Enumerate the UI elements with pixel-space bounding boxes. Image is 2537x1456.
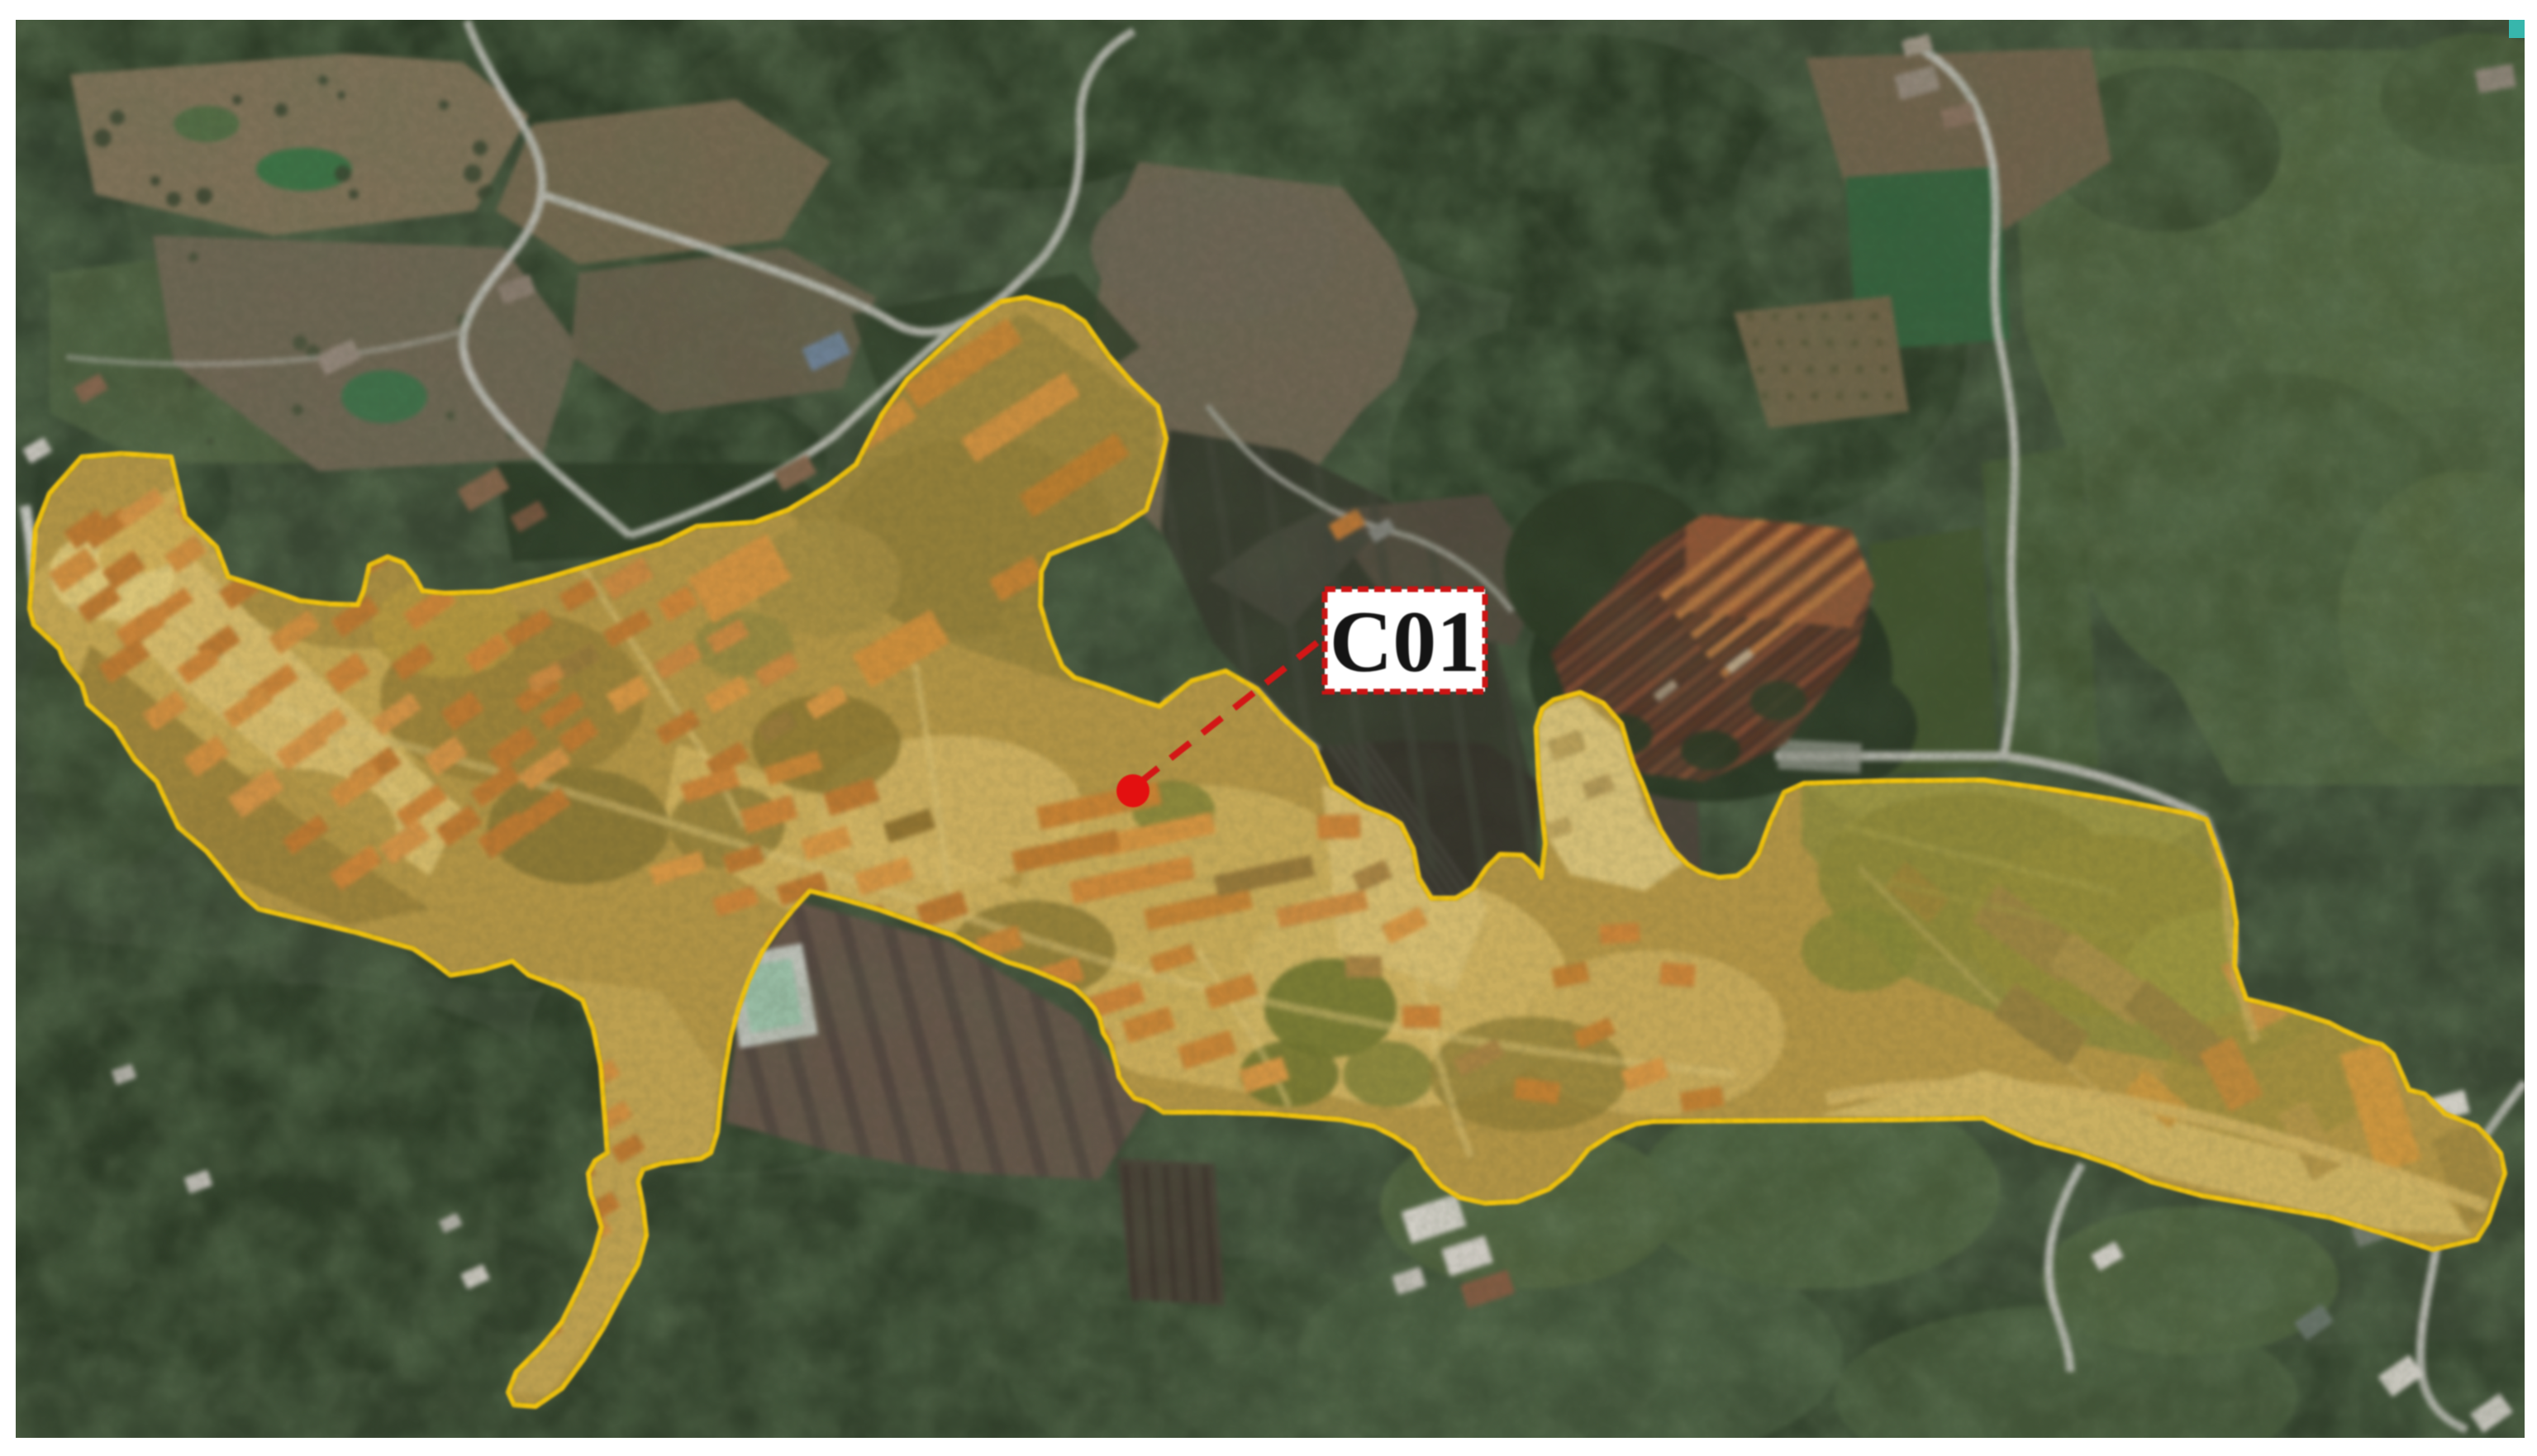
svg-text:C01: C01 [1330, 593, 1481, 690]
